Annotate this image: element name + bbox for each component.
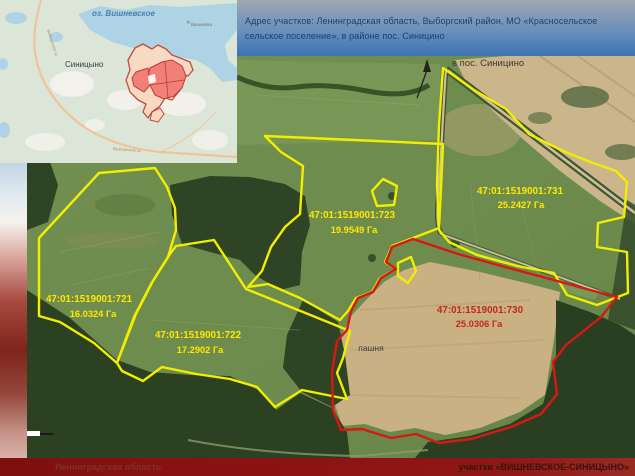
parcel-label-731: 47:01:1519001:731 [477,186,564,197]
inset-small-lake [5,12,27,24]
address-text: Адрес участков: Ленинградская область, В… [245,14,629,44]
parcel-area-722: 17.2902 Га [177,345,224,355]
parcel-label-723: 47:01:1519001:723 [309,210,396,221]
inset-settlement-label: Синицыно [65,60,104,69]
parcel-label-730: 47:01:1519001:730 [437,305,524,316]
inset-clearing [192,130,228,150]
land-use-label: пашня [358,343,384,353]
parcel-label-722: 47:01:1519001:722 [155,330,242,341]
address-header: Адрес участков: Ленинградская область, В… [237,0,635,56]
inset-clearing [50,71,94,97]
inset-map: оз. Вишневское Синицыно Вишневка Выборгс… [0,0,237,163]
field-patch [95,194,155,216]
tree-patch [561,86,609,108]
tree-patch [528,112,552,124]
tree-patch [368,254,376,262]
field-patch [237,60,440,145]
inset-village-label: Вишневка [191,22,213,27]
parcel-label-721: 47:01:1519001:721 [46,294,133,305]
parcel-area-730: 25.0306 Га [456,319,503,329]
parcel-area-721: 16.0324 Га [70,309,117,319]
inset-lake-label: оз. Вишневское [92,9,155,18]
inset-village-marker [187,21,190,24]
presentation-slide: 47:01:1519001:721 16.0324 Га 47:01:15190… [0,0,635,476]
parcel-area-723: 19.9549 Га [331,225,378,235]
footer-bar: Ленинградская область участки «ВИШНЕВСКО… [0,458,635,476]
parcel-area-731: 25.2427 Га [498,200,545,210]
footer-region-label: Ленинградская область [55,462,161,472]
footer-project-label: участки «ВИШНЕВСКОЕ-СИНИЦЫНО» [458,462,629,472]
left-gradient-strip [0,163,27,476]
inset-clearing [25,133,65,151]
direction-label: в пос. Синицино [452,58,524,69]
